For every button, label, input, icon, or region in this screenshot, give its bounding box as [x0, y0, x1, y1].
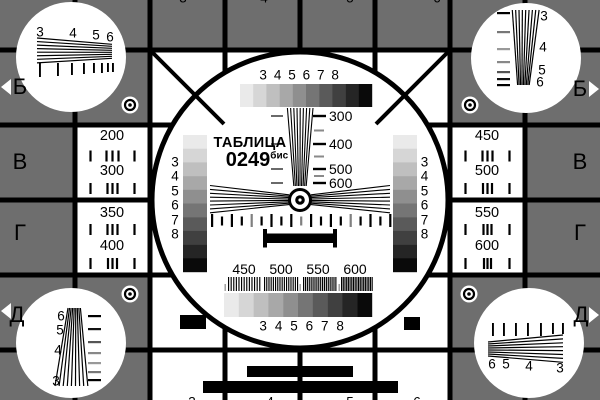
frequency-line	[249, 277, 250, 291]
grayscale-label-left: 6	[171, 198, 179, 212]
freq-label-600: 600	[343, 262, 366, 276]
wedge-label-600: 600	[329, 176, 352, 190]
tick-mark	[211, 214, 213, 227]
grayscale-step-right	[393, 190, 417, 204]
grayscale-step-top	[293, 84, 306, 107]
right-panel-value-600: 600	[475, 239, 499, 254]
reference-bar-cap	[263, 229, 267, 248]
dash-mark	[497, 48, 510, 50]
edge-column-digit-top: 4	[260, 0, 268, 5]
tick-mark	[330, 214, 332, 227]
tick-mark	[515, 323, 517, 336]
frequency-line	[367, 277, 368, 291]
row-letter-left-d: Д	[10, 304, 25, 326]
grayscale-label-right: 4	[421, 170, 429, 184]
frequency-line	[341, 277, 342, 291]
corner-wedge-label: 4	[54, 343, 62, 357]
grayscale-step-top	[280, 84, 293, 107]
corner-wedge-label: 3	[36, 25, 44, 39]
grayscale-step-bottom	[283, 293, 298, 317]
grayscale-label-left: 3	[171, 155, 179, 169]
tick-mark	[71, 63, 73, 75]
edge-column-digit-bottom: 5	[346, 395, 354, 400]
grayscale-label-right: 6	[421, 198, 429, 212]
grayscale-step-right	[393, 258, 417, 272]
corner-wedge-label: 3	[52, 374, 60, 388]
dash-mark	[88, 379, 101, 381]
tick-mark	[231, 214, 233, 227]
tick-mark	[482, 224, 484, 235]
row-letter-left-g: Г	[14, 222, 26, 244]
sync-bar	[203, 381, 398, 393]
frequency-line	[288, 277, 289, 291]
tick-mark	[540, 323, 542, 336]
corner-circle	[474, 288, 584, 398]
tick-mark	[486, 224, 488, 235]
reference-bar-cap	[333, 229, 337, 248]
frequency-line	[246, 277, 247, 291]
tick-mark	[379, 217, 381, 226]
frequency-line	[372, 277, 373, 291]
grayscale-label-left: 7	[171, 213, 179, 227]
grayscale-step-top	[253, 84, 266, 107]
tick-mark	[508, 258, 510, 269]
grayscale-step-bottom	[298, 293, 313, 317]
row-letter-left-v: В	[13, 151, 28, 173]
left-panel-value-200: 200	[100, 129, 124, 144]
corner-wedge-label: 6	[106, 30, 114, 44]
grayscale-step-bottom	[268, 293, 283, 317]
tick-mark	[111, 258, 113, 269]
frequency-line	[355, 277, 356, 291]
tick-mark	[107, 63, 109, 72]
tick-mark	[106, 224, 108, 235]
dash-mark	[88, 328, 101, 330]
grayscale-label-left: 5	[171, 184, 179, 198]
frequency-line	[316, 277, 317, 291]
frequency-line	[353, 277, 354, 291]
frequency-line	[282, 277, 283, 291]
registration-mark-dot	[468, 103, 472, 107]
frequency-line	[360, 277, 361, 291]
sync-bar	[247, 366, 353, 377]
corner-wedge-label: 3	[556, 361, 564, 375]
wedge-dash	[313, 182, 326, 184]
grayscale-label-top: 4	[274, 68, 282, 82]
grayscale-label-left: 4	[171, 170, 179, 184]
grayscale-step-left	[183, 245, 207, 259]
registration-mark-dot	[128, 103, 132, 107]
grayscale-step-bottom	[328, 293, 343, 317]
row-letter-right-d: Д	[574, 304, 589, 326]
wedge-label-300: 300	[329, 109, 352, 123]
wedge-line-left	[210, 200, 289, 201]
edge-column-digit-bottom: 6	[413, 395, 421, 400]
row-letter-right-b: Б	[573, 78, 587, 100]
right-panel-value-450: 450	[475, 129, 499, 144]
freq-label-450: 450	[232, 262, 255, 276]
grayscale-step-bottom	[357, 293, 372, 317]
tick-mark	[111, 224, 113, 235]
wedge-dash	[313, 115, 326, 117]
grayscale-label-bottom: 7	[321, 319, 329, 333]
frequency-line	[332, 277, 333, 291]
grayscale-step-bottom	[313, 293, 328, 317]
tick-mark	[464, 183, 466, 194]
grayscale-step-bottom	[239, 293, 254, 317]
wedge-dash	[314, 175, 324, 177]
wedge-label-400: 400	[329, 137, 352, 151]
dash-mark	[497, 84, 510, 86]
frequency-line	[358, 277, 359, 291]
frequency-line	[324, 277, 325, 291]
corner-wedge-label: 5	[502, 357, 510, 371]
tick-mark	[310, 214, 312, 227]
corner-wedge-line	[488, 350, 563, 351]
dash-mark	[497, 61, 510, 63]
left-panel-value-350: 350	[100, 206, 124, 221]
tick-mark	[133, 224, 135, 235]
frequency-line	[344, 277, 345, 291]
row-pointer	[589, 307, 599, 323]
grayscale-step-bottom	[224, 293, 239, 317]
freq-label-550: 550	[306, 262, 329, 276]
tick-mark	[503, 323, 505, 336]
grayscale-step-left	[183, 149, 207, 163]
dash-mark	[497, 12, 510, 14]
corner-wedge-label: 4	[69, 26, 77, 40]
black-square	[404, 317, 420, 330]
tick-mark	[89, 151, 91, 162]
grayscale-step-right	[393, 162, 417, 176]
edge-column-digit-bottom: 3	[188, 395, 196, 400]
tick-mark	[486, 151, 488, 162]
grayscale-label-right: 5	[421, 184, 429, 198]
tick-mark	[340, 217, 342, 226]
grayscale-step-left	[183, 162, 207, 176]
grayscale-step-right	[393, 204, 417, 218]
frequency-line	[290, 277, 291, 291]
frequency-line	[257, 277, 258, 291]
grayscale-label-bottom: 3	[259, 319, 267, 333]
dash-mark	[497, 31, 510, 33]
frequency-separator	[339, 284, 340, 291]
wedge-dash	[271, 182, 283, 184]
frequency-line	[305, 277, 306, 291]
frequency-line	[348, 277, 349, 291]
row-pointer	[1, 79, 11, 95]
tick-mark	[112, 63, 114, 72]
edge-column-digit-top: 3	[179, 0, 187, 5]
grayscale-label-top: 5	[288, 68, 296, 82]
frequency-line	[365, 277, 366, 291]
tick-mark	[261, 217, 263, 226]
tick-mark	[221, 217, 223, 226]
edge-column-digit-bottom: 4	[266, 395, 274, 400]
grayscale-label-bottom: 5	[290, 319, 298, 333]
tick-mark	[39, 63, 41, 77]
dash-mark	[497, 71, 510, 73]
tick-mark	[481, 151, 483, 162]
tick-mark	[482, 183, 484, 194]
grayscale-label-top: 7	[317, 68, 325, 82]
tick-mark	[241, 217, 243, 226]
corner-wedge-label: 6	[488, 357, 496, 371]
wedge-dash	[271, 115, 283, 117]
frequency-line	[303, 277, 304, 291]
tick-mark	[105, 151, 107, 162]
tick-mark	[116, 183, 118, 194]
frequency-separator	[300, 284, 301, 291]
frequency-line	[322, 277, 323, 291]
tick-mark	[464, 224, 466, 235]
tick-mark	[270, 214, 272, 227]
black-square	[180, 315, 206, 329]
dash-mark	[88, 371, 101, 373]
frequency-line	[297, 277, 298, 291]
frequency-line	[356, 277, 357, 291]
grayscale-step-left	[183, 204, 207, 218]
grayscale-label-left: 8	[171, 227, 179, 241]
row-letter-left-b: Б	[13, 76, 27, 98]
grayscale-step-top	[346, 84, 359, 107]
tick-mark	[491, 183, 493, 194]
grayscale-step-right	[393, 176, 417, 190]
frequency-line	[284, 277, 285, 291]
tick-mark	[89, 183, 91, 194]
tick-mark	[290, 214, 292, 227]
dash-mark	[88, 362, 101, 364]
tick-mark	[111, 151, 113, 162]
tick-mark	[490, 224, 492, 235]
reference-bar	[266, 234, 334, 244]
tick-mark	[101, 63, 103, 73]
dash-mark	[88, 315, 101, 317]
grayscale-label-top: 3	[259, 68, 267, 82]
frequency-line	[368, 277, 369, 291]
wedge-dash	[313, 168, 326, 170]
frequency-line	[351, 277, 352, 291]
frequency-line	[328, 277, 329, 291]
grayscale-step-top	[306, 84, 319, 107]
tick-mark	[350, 214, 352, 227]
frequency-line	[277, 277, 278, 291]
tick-mark	[508, 151, 510, 162]
grayscale-step-top	[332, 84, 345, 107]
frequency-line	[241, 277, 242, 291]
dash-mark	[497, 78, 510, 80]
corner-wedge-label: 5	[56, 323, 64, 337]
dash-mark	[88, 352, 101, 354]
grayscale-step-bottom	[254, 293, 269, 317]
frequency-line	[233, 277, 234, 291]
dash-mark	[88, 341, 101, 343]
tick-mark	[111, 183, 113, 194]
wedge-label-500: 500	[329, 162, 352, 176]
row-letter-right-g: Г	[574, 222, 586, 244]
frequency-line	[333, 277, 334, 291]
tick-mark	[491, 151, 493, 162]
edge-column-digit-top: 6	[433, 0, 441, 5]
test-card: ТАБЛИЦА 0249бис Б В Г Д Б В Г Д 200 300 …	[0, 0, 600, 400]
grayscale-label-right: 8	[421, 227, 429, 241]
frequency-line	[275, 277, 276, 291]
tick-mark	[389, 214, 391, 227]
tick-mark	[492, 323, 494, 336]
frequency-line	[251, 277, 252, 291]
corner-wedge-label: 3	[540, 9, 548, 23]
frequency-line	[343, 277, 344, 291]
frequency-line	[244, 277, 245, 291]
tick-mark	[552, 323, 554, 334]
registration-mark-dot	[128, 292, 132, 296]
tick-mark	[486, 258, 488, 269]
tick-mark	[320, 217, 322, 226]
right-panel-value-500: 500	[475, 164, 499, 179]
frequency-line	[350, 277, 351, 291]
frequency-line	[363, 277, 364, 291]
test-card-graphics	[0, 0, 600, 400]
corner-wedge-label: 6	[536, 75, 544, 89]
frequency-line	[231, 277, 232, 291]
grayscale-step-right	[393, 135, 417, 149]
registration-mark-dot	[467, 292, 471, 296]
tick-mark	[527, 323, 529, 336]
wedge-dash	[314, 156, 324, 158]
tick-mark	[464, 258, 466, 269]
grayscale-label-top: 6	[303, 68, 311, 82]
frequency-separator	[225, 284, 226, 291]
grayscale-step-left	[183, 231, 207, 245]
corner-wedge-label: 4	[539, 40, 547, 54]
corner-wedge-label: 6	[57, 309, 65, 323]
frequency-line	[228, 277, 229, 291]
frequency-line	[313, 277, 314, 291]
frequency-line	[286, 277, 287, 291]
tick-mark	[89, 224, 91, 235]
grayscale-step-top	[319, 84, 332, 107]
edge-column-digit-top: 5	[346, 0, 354, 5]
left-panel-value-400: 400	[100, 239, 124, 254]
grayscale-step-bottom	[342, 293, 357, 317]
tick-mark	[483, 258, 485, 269]
tick-mark	[280, 217, 282, 226]
frequency-line	[259, 277, 260, 291]
grayscale-step-right	[393, 231, 417, 245]
tick-mark	[93, 63, 95, 73]
tick-mark	[562, 323, 564, 334]
grayscale-label-bottom: 8	[336, 319, 344, 333]
tick-mark	[133, 151, 135, 162]
frequency-line	[326, 277, 327, 291]
frequency-line	[279, 277, 280, 291]
grayscale-step-left	[183, 190, 207, 204]
frequency-line	[273, 277, 274, 291]
frequency-line	[264, 277, 265, 291]
frequency-line	[370, 277, 371, 291]
card-code-suffix: бис	[270, 150, 288, 161]
wedge-dash	[313, 143, 326, 145]
center-mark-dot	[298, 198, 301, 201]
frequency-line	[330, 277, 331, 291]
grayscale-step-right	[393, 217, 417, 231]
frequency-line	[266, 277, 267, 291]
grayscale-label-top: 8	[331, 68, 339, 82]
frequency-line	[361, 277, 362, 291]
tick-mark	[486, 183, 488, 194]
freq-label-500: 500	[269, 262, 292, 276]
frequency-line	[238, 277, 239, 291]
tick-mark	[508, 183, 510, 194]
row-letter-right-v: В	[573, 151, 588, 173]
tick-mark	[107, 258, 109, 269]
grayscale-label-right: 7	[421, 213, 429, 227]
tick-mark	[116, 258, 118, 269]
card-code-number: 0249	[226, 149, 271, 171]
frequency-line	[311, 277, 312, 291]
grayscale-step-left	[183, 176, 207, 190]
tick-mark	[300, 217, 302, 226]
frequency-line	[271, 277, 272, 291]
tick-mark	[464, 151, 466, 162]
tick-mark	[360, 217, 362, 226]
frequency-line	[335, 277, 336, 291]
tick-mark	[508, 224, 510, 235]
frequency-line	[309, 277, 310, 291]
row-pointer	[589, 81, 599, 97]
frequency-line	[236, 277, 237, 291]
tick-mark	[117, 151, 119, 162]
tick-mark	[116, 224, 118, 235]
grayscale-label-bottom: 6	[306, 319, 314, 333]
grayscale-label-right: 3	[421, 155, 429, 169]
grayscale-step-top	[359, 84, 372, 107]
grayscale-step-top	[240, 84, 253, 107]
frequency-line	[295, 277, 296, 291]
tick-mark	[83, 63, 85, 74]
grayscale-step-left	[183, 217, 207, 231]
tick-mark	[106, 183, 108, 194]
grayscale-step-top	[266, 84, 279, 107]
wedge-dash	[314, 130, 324, 132]
grayscale-label-bottom: 4	[275, 319, 283, 333]
frequency-line	[268, 277, 269, 291]
tick-mark	[490, 258, 492, 269]
grayscale-step-right	[393, 149, 417, 163]
frequency-line	[318, 277, 319, 291]
frequency-line	[320, 277, 321, 291]
grayscale-step-left	[183, 135, 207, 149]
frequency-line	[293, 277, 294, 291]
tick-mark	[369, 214, 371, 227]
frequency-line	[314, 277, 315, 291]
tick-mark	[89, 258, 91, 269]
tick-mark	[251, 214, 253, 227]
frequency-line	[254, 277, 255, 291]
corner-wedge-label: 5	[92, 28, 100, 42]
card-code: 0249бис	[226, 150, 288, 170]
tick-mark	[133, 183, 135, 194]
corner-wedge-label: 4	[525, 359, 533, 373]
tick-mark	[57, 63, 59, 76]
wedge-line-right	[311, 200, 390, 201]
grayscale-step-left	[183, 258, 207, 272]
left-panel-value-300: 300	[100, 164, 124, 179]
frequency-line	[346, 277, 347, 291]
frequency-line	[307, 277, 308, 291]
grayscale-step-right	[393, 245, 417, 259]
tick-mark	[133, 258, 135, 269]
